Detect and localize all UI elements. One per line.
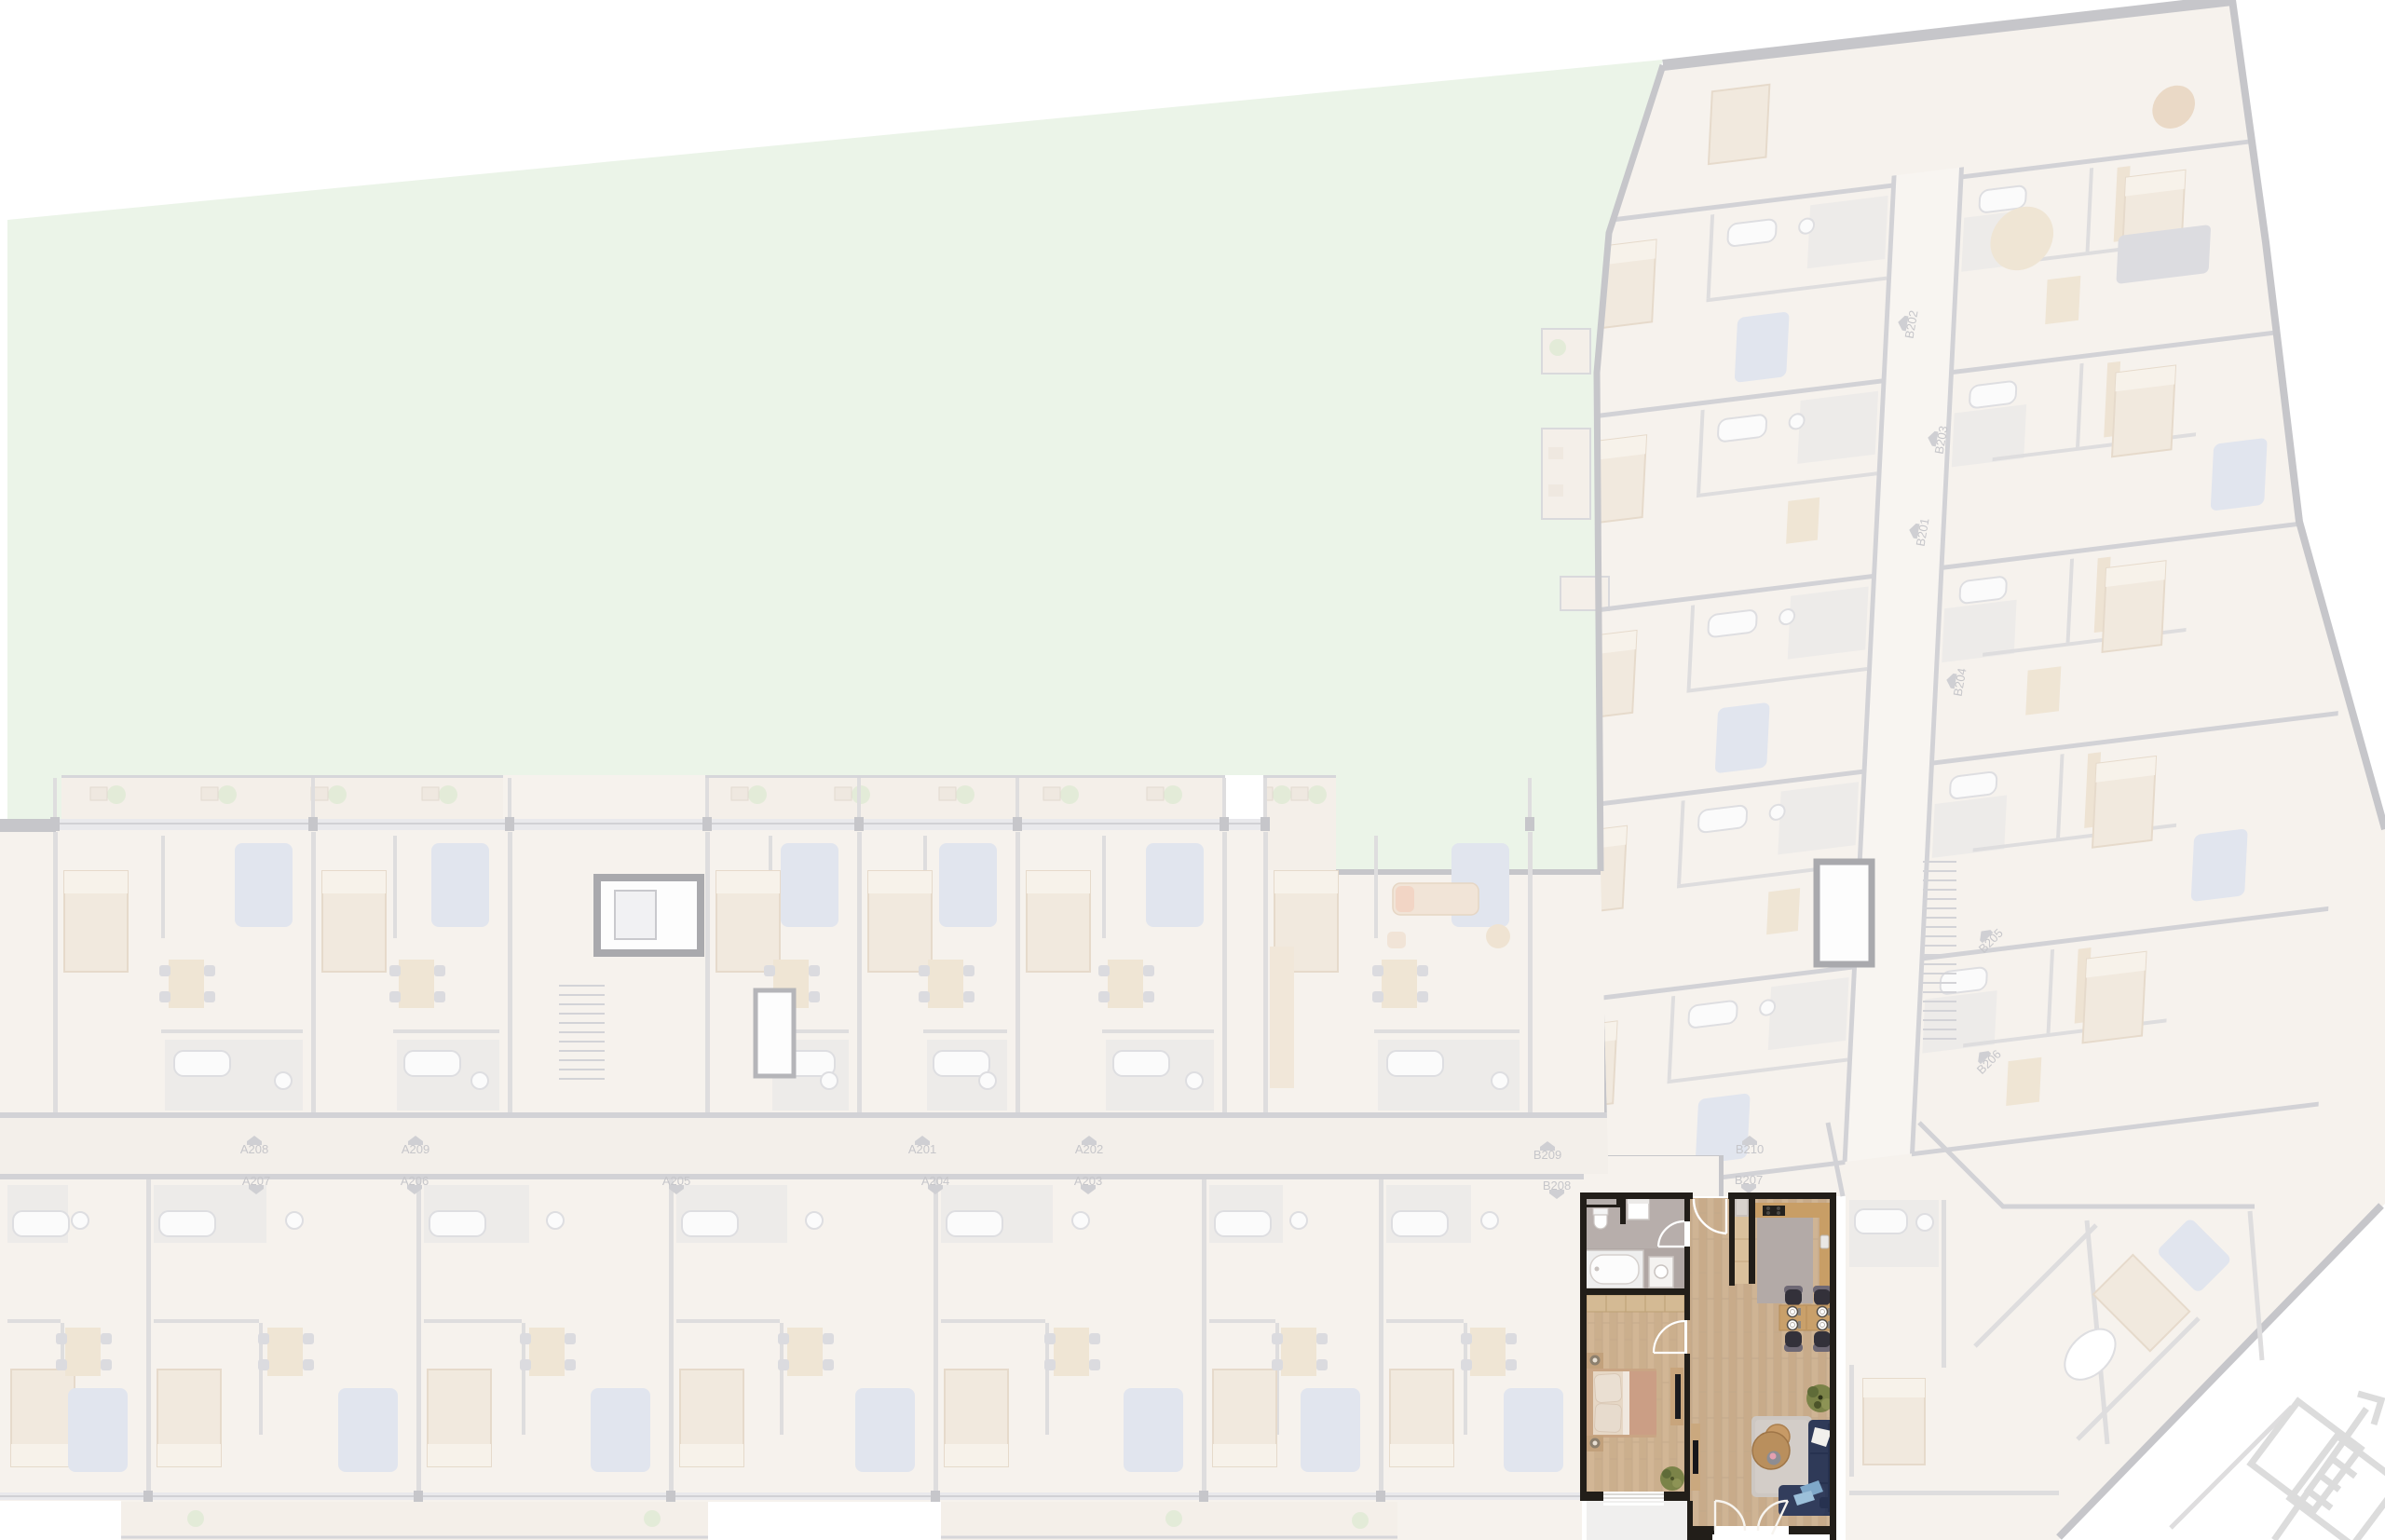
svg-text:B208: B208 [1543,1179,1571,1192]
svg-text:A204: A204 [921,1174,949,1188]
svg-text:A209: A209 [402,1142,429,1156]
svg-text:A205: A205 [662,1174,690,1188]
svg-text:B210: B210 [1736,1142,1764,1156]
svg-text:A206: A206 [401,1174,429,1188]
svg-text:B207: B207 [1735,1173,1763,1187]
svg-text:A208: A208 [240,1142,268,1156]
svg-text:B209: B209 [1533,1148,1561,1162]
svg-text:A207: A207 [242,1174,270,1188]
svg-text:A203: A203 [1074,1174,1102,1188]
svg-text:A201: A201 [908,1142,936,1156]
svg-text:A202: A202 [1075,1142,1103,1156]
